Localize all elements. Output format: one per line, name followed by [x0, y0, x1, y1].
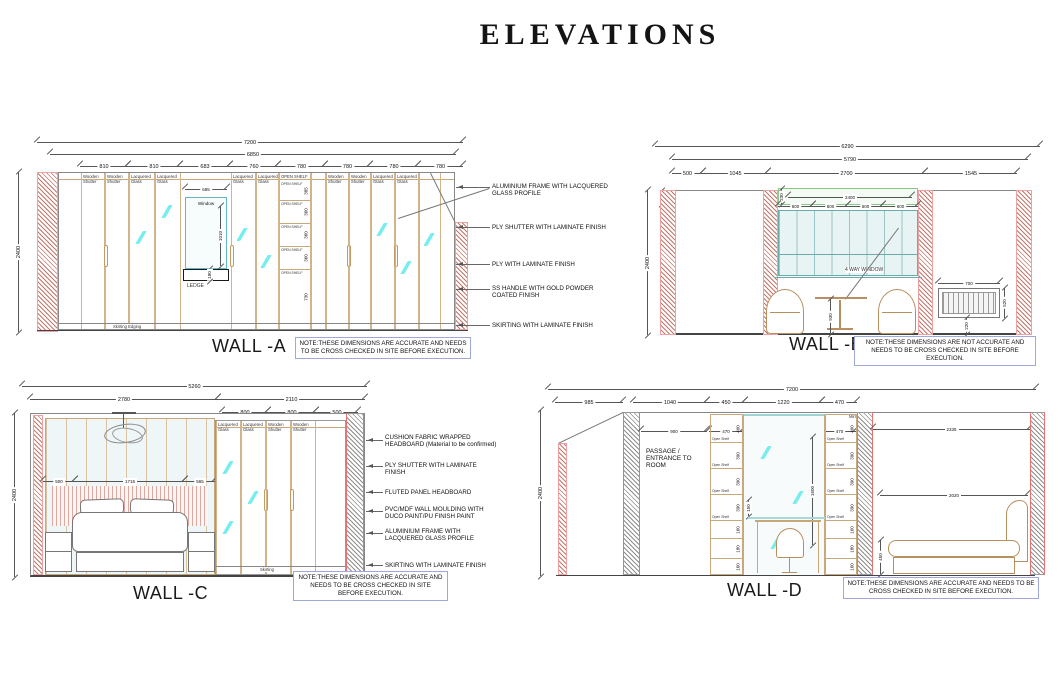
wall-d-dim-seg: 450	[707, 402, 745, 403]
skirting-line	[216, 566, 345, 567]
wall-c-dim-total: 5260	[22, 386, 367, 387]
open-shelf-column: OPEN SHELF OPEN SHELF385 OPEN SHELF360 O…	[279, 173, 311, 329]
wall-c-wall-section	[33, 415, 43, 575]
leader	[366, 565, 383, 566]
panel-wooden-shutter: Wooden Shutter	[81, 173, 105, 329]
chair-seat-line	[882, 312, 912, 313]
wall-a-dim-seg: 780	[370, 166, 418, 167]
wall-a-dim-seg: 780	[418, 166, 463, 167]
wall-d-dim-seg: 1040	[633, 402, 707, 403]
drawer: 160	[711, 521, 742, 539]
chair-stem	[789, 558, 790, 572]
leader	[456, 325, 490, 326]
wall-b-dim-seg: 1045	[703, 173, 768, 174]
wall-a-ledge-height-dim: 180	[209, 269, 210, 281]
wall-c-skirting-label: Skirting	[260, 567, 274, 572]
panel-lacquered-glass: Lacquered Glass	[241, 421, 266, 574]
wall-a-note: NOTE:THESE DIMENSIONS ARE ACCURATE AND N…	[295, 337, 471, 359]
wall-d-right-dim: 2020	[880, 495, 1028, 496]
wall-b-radiator-width-dim: 700	[938, 283, 1000, 284]
wall-c-annotation: PVC/MDF WALL MOULDING WITH DUCO PAINT/PU…	[385, 506, 495, 520]
wall-c-wardrobe: Lacquered Glass Lacquered Glass Wooden S…	[215, 420, 346, 575]
open-shelf-cell: OPEN SHELF360	[280, 224, 310, 247]
sloped-ceiling-line	[558, 412, 623, 444]
table-top	[815, 297, 867, 299]
wall-d-floor-line	[556, 575, 1035, 576]
desk-glass-top	[748, 517, 825, 519]
wall-a-dim-seg: 760	[230, 166, 278, 167]
panel-lacquered-glass: Lacquered Glass	[256, 173, 279, 329]
window-sill-line	[774, 277, 922, 278]
drawer: 180	[826, 539, 856, 559]
wall-a-wardrobe: Wooden Shutter Wooden Shutter Lacquered …	[58, 172, 455, 330]
wall-a-skirting-label: Skirting Edging	[113, 324, 141, 329]
open-shelf-cell: 400Open Shelf	[826, 415, 856, 443]
wall-b-dim-height: 2400	[647, 190, 648, 335]
open-shelf-cell: 390Open Shelf	[826, 495, 856, 521]
wall-b-radiator-offset-dim: 220	[966, 318, 967, 334]
drawer-line	[189, 551, 214, 552]
chair	[878, 289, 916, 334]
glass-glint	[400, 261, 412, 274]
wall-d-shelf-column: 400Open Shelf 390Open Shelf 390Open Shel…	[710, 414, 743, 575]
wall-d-mirror-height-dim: 1600	[812, 437, 813, 545]
wall-b-pelmet-height-dim: 230	[781, 189, 782, 204]
leader	[366, 466, 383, 467]
chair-base	[782, 572, 797, 573]
wall-a-annotation: PLY SHUTTER WITH LAMINATE FINISH	[492, 224, 652, 231]
wall-c-annotation: FLUTED PANEL HEADBOARD	[385, 489, 510, 496]
wall-a-annotation: SKIRTING WITH LAMINATE FINISH	[492, 322, 652, 329]
wall-c-inner-dim: 565	[185, 481, 215, 482]
panel-filler	[311, 173, 326, 329]
nightstand	[45, 532, 72, 572]
wall-a-annotation: PLY WITH LAMINATE FINISH	[492, 261, 652, 268]
wall-d-left-wall-section	[558, 443, 567, 575]
handle	[104, 245, 108, 267]
wall-d-dim-total: 7200	[548, 389, 1036, 390]
panel-wooden-shutter: Wooden Shutter	[326, 173, 349, 329]
wall-d-passage-wall-section	[623, 412, 640, 575]
open-shelf-cell: 390Open Shelf	[711, 495, 742, 521]
wall-b-pane-dim: 600	[813, 206, 848, 207]
panel-lacquered-glass: Lacquered Glass	[216, 421, 241, 574]
wall-a-dim-seg: 780	[325, 166, 370, 167]
wall-b-wall-section	[660, 190, 676, 335]
wall-a-right-wall-section	[455, 222, 468, 330]
glass-glint	[236, 228, 248, 241]
wall-d-dim-seg: 470	[822, 402, 857, 403]
open-shelf-cell: OPEN SHELF360	[280, 247, 310, 270]
wall-b-pane-dim: 600	[883, 206, 918, 207]
glass-glint	[222, 521, 234, 534]
panel-filler	[419, 173, 441, 329]
wall-a-ledge-label: LEDGE	[187, 283, 204, 289]
wall-a-annotation: ALUMINIUM FRAME WITH LACQUERED GLASS PRO…	[492, 183, 612, 197]
glass-glint	[135, 231, 147, 244]
wall-a-dim-inner: 6850	[50, 154, 456, 155]
wall-a-floor-line	[37, 330, 468, 331]
bed-base	[76, 552, 184, 572]
chair	[766, 289, 804, 334]
wall-c-inner-dim: 1715	[75, 481, 185, 482]
wall-b-dim-seg: 1545	[925, 173, 1017, 174]
window-transom-line	[779, 254, 917, 255]
panel-lacquered-glass: Lacquered Glass	[231, 173, 256, 329]
wall-a-left-wall-section	[37, 172, 58, 332]
leader	[366, 440, 383, 441]
wall-d-title: WALL -D	[727, 580, 802, 601]
panel-lacquered-glass: Lacquered Glass	[371, 173, 395, 329]
wall-b-note: NOTE:THESE DIMENSIONS ARE NOT ACCURATE A…	[854, 336, 1036, 366]
glass-glint	[760, 446, 772, 459]
wall-d-dim-seg: 985	[555, 402, 623, 403]
open-shelf-cell: 390Open Shelf	[826, 469, 856, 495]
open-shelf-cell: 390Open Shelf	[711, 469, 742, 495]
wall-b-pane-dim: 600	[778, 206, 813, 207]
open-shelf-cell: 400Open Shelf	[711, 415, 742, 443]
wall-b-wall-section	[1016, 190, 1032, 335]
desk-leg	[818, 520, 819, 573]
glass-glint	[247, 491, 259, 504]
wall-c-note: NOTE:THESE DIMENSIONS ARE ACCURATE AND N…	[293, 571, 448, 601]
leader	[456, 289, 490, 290]
wall-a-dim-total: 7200	[37, 142, 463, 143]
wall-b-dim-total: 6290	[655, 146, 1040, 147]
drawer: 160	[826, 559, 856, 575]
wall-d-bed-height-dim: 450	[880, 540, 881, 574]
wall-d-dim-height: 2400	[540, 410, 541, 576]
panel-wooden-shutter: Wooden Shutter	[291, 421, 316, 574]
handle	[290, 489, 294, 511]
open-shelf-cell: 390Open Shelf	[826, 443, 856, 469]
wall-b-window-width-dim: 2400	[788, 197, 912, 198]
drawer: 160	[826, 521, 856, 539]
panel-wooden-shutter: Wooden Shutter	[105, 173, 129, 329]
nightstand	[188, 532, 215, 572]
desk-chair	[776, 528, 804, 558]
desk-top	[755, 520, 821, 522]
wall-a-window-height-dim: 1010	[220, 206, 221, 266]
wall-b-dim-inner: 5790	[672, 159, 1028, 160]
panel-lacquered-glass: Lacquered Glass	[395, 173, 419, 329]
glass-glint	[423, 233, 435, 246]
panel-lacquered-glass: Lacquered Glass	[129, 173, 155, 329]
bed-base-side	[893, 557, 1015, 574]
elevation-sheet: ELEVATIONS 7200 6850 810 810 683 760 780…	[0, 0, 1058, 681]
leader	[456, 264, 490, 265]
wall-a-dim-seg: 780	[278, 166, 325, 167]
wall-a-dim-height: 2400	[18, 172, 19, 332]
panel-lacquered-glass: Lacquered Glass	[155, 173, 181, 329]
bed-mattress-side	[888, 540, 1020, 557]
wall-d-desk-dim: 150	[748, 500, 749, 516]
wall-c-annotation: SKIRTING WITH LAMINATE FINISH	[385, 562, 510, 569]
wall-a-dim-seg: 683	[180, 166, 230, 167]
wall-d-inner-dim: 900	[641, 431, 707, 432]
wall-a-dim-seg: 810	[128, 166, 180, 167]
wall-b-table-height-dim: 930	[830, 299, 831, 334]
wall-c-inner-dim: 500	[43, 481, 75, 482]
leader	[366, 511, 383, 512]
panel-wooden-shutter: Wooden Shutter	[266, 421, 291, 574]
wall-d-right-wall-section	[1030, 412, 1045, 575]
sheet-title: ELEVATIONS	[420, 18, 780, 52]
drawer-line	[46, 551, 71, 552]
open-shelf-cell: OPEN SHELF385	[280, 181, 310, 201]
wall-c-annotation: ALUMINIUM FRAME WITH LACQUERED GLASS PRO…	[385, 528, 495, 542]
wall-d-note: NOTE:THESE DIMENSIONS ARE ACCURATE AND N…	[843, 577, 1039, 599]
radiator-fins	[942, 292, 996, 314]
leader	[366, 533, 383, 534]
wall-c-annotation: PLY SHUTTER WITH LAMINATE FINISH	[385, 462, 485, 476]
wall-c-right-wall-section	[346, 413, 364, 576]
wall-d-passage-label: PASSAGE / ENTRANCE TO ROOM	[646, 448, 704, 470]
leader	[366, 492, 383, 493]
wall-a-title: WALL -A	[212, 336, 286, 357]
panel-wooden-shutter: Wooden Shutter	[349, 173, 371, 329]
open-shelf-cell: OPEN SHELF360	[280, 201, 310, 224]
open-shelf-cell: OPEN SHELF730	[280, 270, 310, 323]
wall-c-title: WALL -C	[133, 583, 208, 604]
wall-a-window-width-dim: 685	[185, 189, 227, 190]
bed-duvet	[72, 512, 188, 552]
wall-b-pane-dim: 600	[848, 206, 883, 207]
open-shelf-cell: 390Open Shelf	[711, 443, 742, 469]
wall-c-annotation: CUSHION FABRIC WRAPPED HEADBOARD (Materi…	[385, 434, 510, 448]
wall-c-dim-height: 2400	[14, 413, 15, 577]
glass-glint	[376, 223, 388, 236]
wall-c-dim-right: 2110	[218, 399, 365, 400]
wall-b-radiator-height-dim: 520	[1004, 288, 1005, 318]
glass-glint	[161, 205, 173, 218]
glass-glint	[792, 491, 804, 504]
handle	[230, 245, 234, 267]
wall-d-ceiling-line	[622, 412, 1035, 413]
wall-a-window: Window 1010	[185, 197, 227, 269]
wall-d-wall-section	[857, 412, 873, 575]
leader	[456, 187, 490, 188]
leader	[456, 227, 490, 228]
glass-glint	[260, 255, 272, 268]
drawer: 180	[711, 539, 742, 559]
wall-b-dim-seg: 500	[672, 173, 703, 174]
wall-b-title: WALL -B	[789, 334, 863, 355]
chair-seat-line	[770, 312, 800, 313]
wall-d-right-dim: 2335	[873, 429, 1030, 430]
wall-d-dim-seg: 1220	[745, 402, 822, 403]
wall-a-annotation: SS HANDLE WITH GOLD POWDER COATED FINISH	[492, 285, 612, 299]
desk-leg	[757, 520, 758, 573]
table-stem	[839, 300, 841, 328]
wall-d-shelf-column: 400Open Shelf 390Open Shelf 390Open Shel…	[825, 414, 857, 575]
wall-b-wall-section	[918, 190, 933, 335]
wall-b-dim-seg: 2700	[768, 173, 925, 174]
chandelier-mount	[112, 412, 136, 414]
wall-c-dim-left: 2780	[30, 399, 218, 400]
wall-a-dim-seg: 810	[80, 166, 128, 167]
drawer: 160	[711, 559, 742, 575]
glass-glint	[222, 461, 234, 474]
